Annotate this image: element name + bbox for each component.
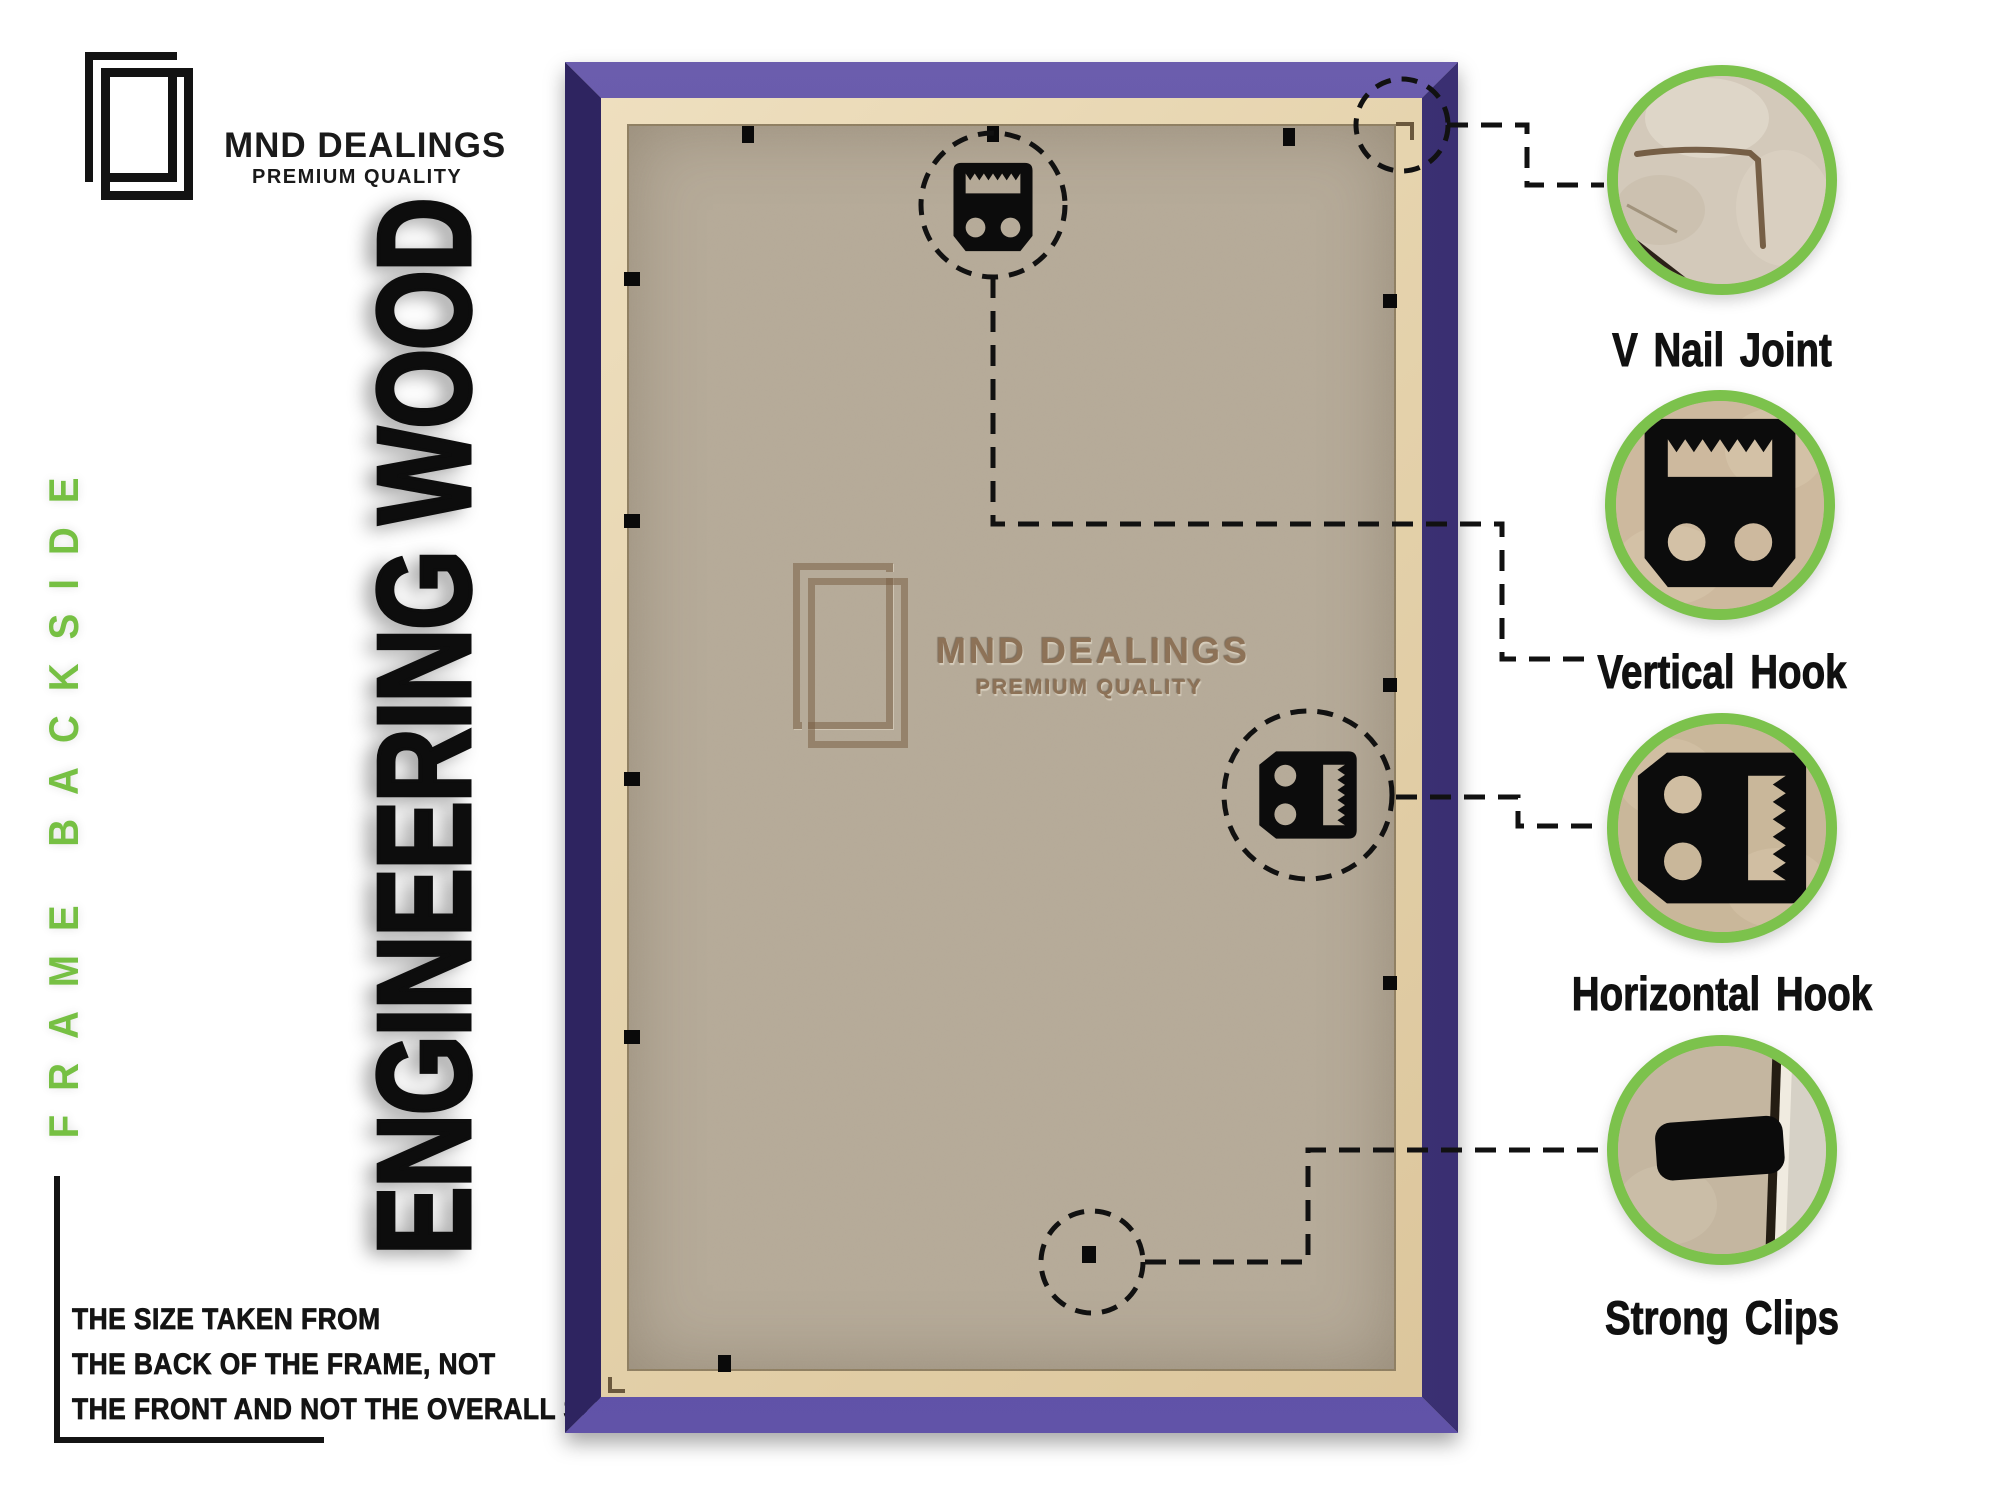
horizontal-hook-photo-art [1618, 724, 1826, 932]
brand-tagline: PREMIUM QUALITY [252, 166, 462, 189]
callout-label-strong-clips: Strong Clips [1533, 1290, 1910, 1345]
watermark-tagline: PREMIUM QUALITY [976, 676, 1203, 700]
watermark-name: MND DEALINGS [936, 630, 1250, 672]
product-infographic: MND DEALINGS PREMIUM QUALITY FRAME BACKS… [0, 0, 2000, 1500]
size-note-line: THE SIZE TAKEN FROM [72, 1303, 381, 1337]
frame-backside-label: FRAME BACKSIDE [40, 454, 88, 1139]
frame-logo-icon [101, 68, 193, 200]
callout-label-horizontal-hook: Horizontal Hook [1533, 966, 1910, 1021]
v-nail-joint-photo [1607, 65, 1837, 295]
mdf-texture [627, 124, 1396, 1371]
leader-line-v-nail [1447, 125, 1604, 185]
strong-clips-photo [1607, 1035, 1837, 1265]
vertical-hook-photo-art [1616, 401, 1824, 609]
size-note-line: THE BACK OF THE FRAME, NOT [72, 1348, 496, 1382]
horizontal-hook-photo [1607, 713, 1837, 943]
vertical-hook-photo [1605, 390, 1835, 620]
v-nail-joint-photo-art [1618, 76, 1826, 284]
picture-frame-backside [565, 62, 1458, 1433]
strong-clips-photo-art [1618, 1046, 1826, 1254]
watermark-frame-logo-icon [808, 578, 908, 748]
callout-label-v-nail-joint: V Nail Joint [1533, 322, 1910, 377]
engineering-wood-label: ENGINEERING WOOD [349, 199, 500, 1255]
brand-name: MND DEALINGS [224, 126, 506, 166]
size-note-line: THE FRONT AND NOT THE OVERALL SIZE. [72, 1393, 632, 1427]
callout-label-vertical-hook: Vertical Hook [1533, 644, 1910, 699]
